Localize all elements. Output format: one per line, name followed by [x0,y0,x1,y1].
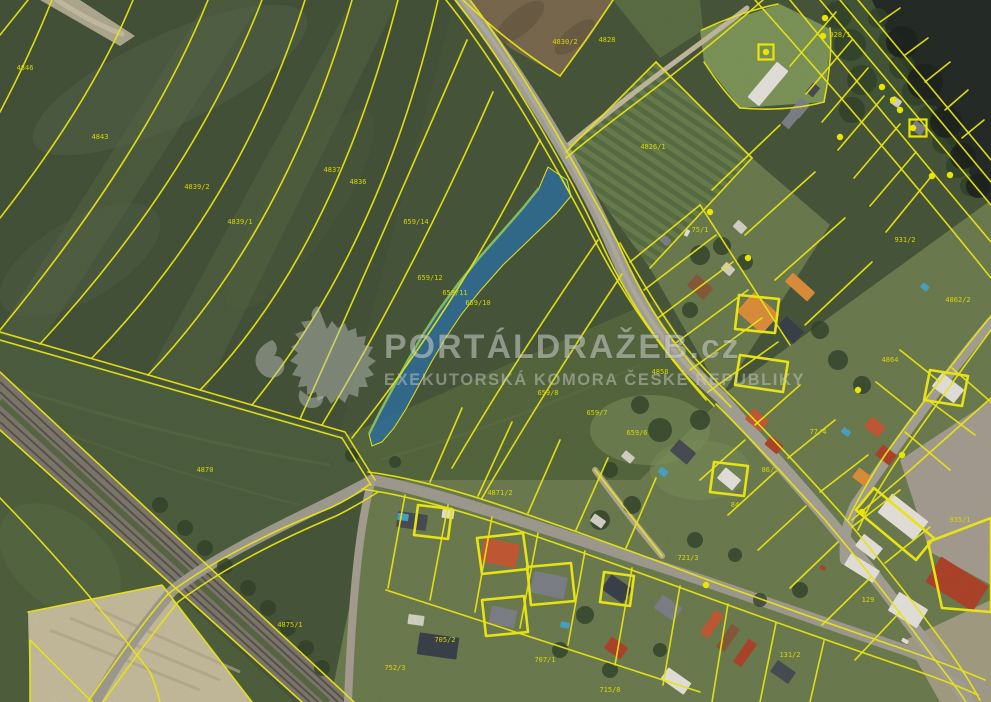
map-viewport[interactable]: 484648434839/24839/148374836659/14659/12… [0,0,991,702]
photo-grain-overlay [0,0,991,702]
cadastral-map-svg: 484648434839/24839/148374836659/14659/12… [0,0,991,702]
